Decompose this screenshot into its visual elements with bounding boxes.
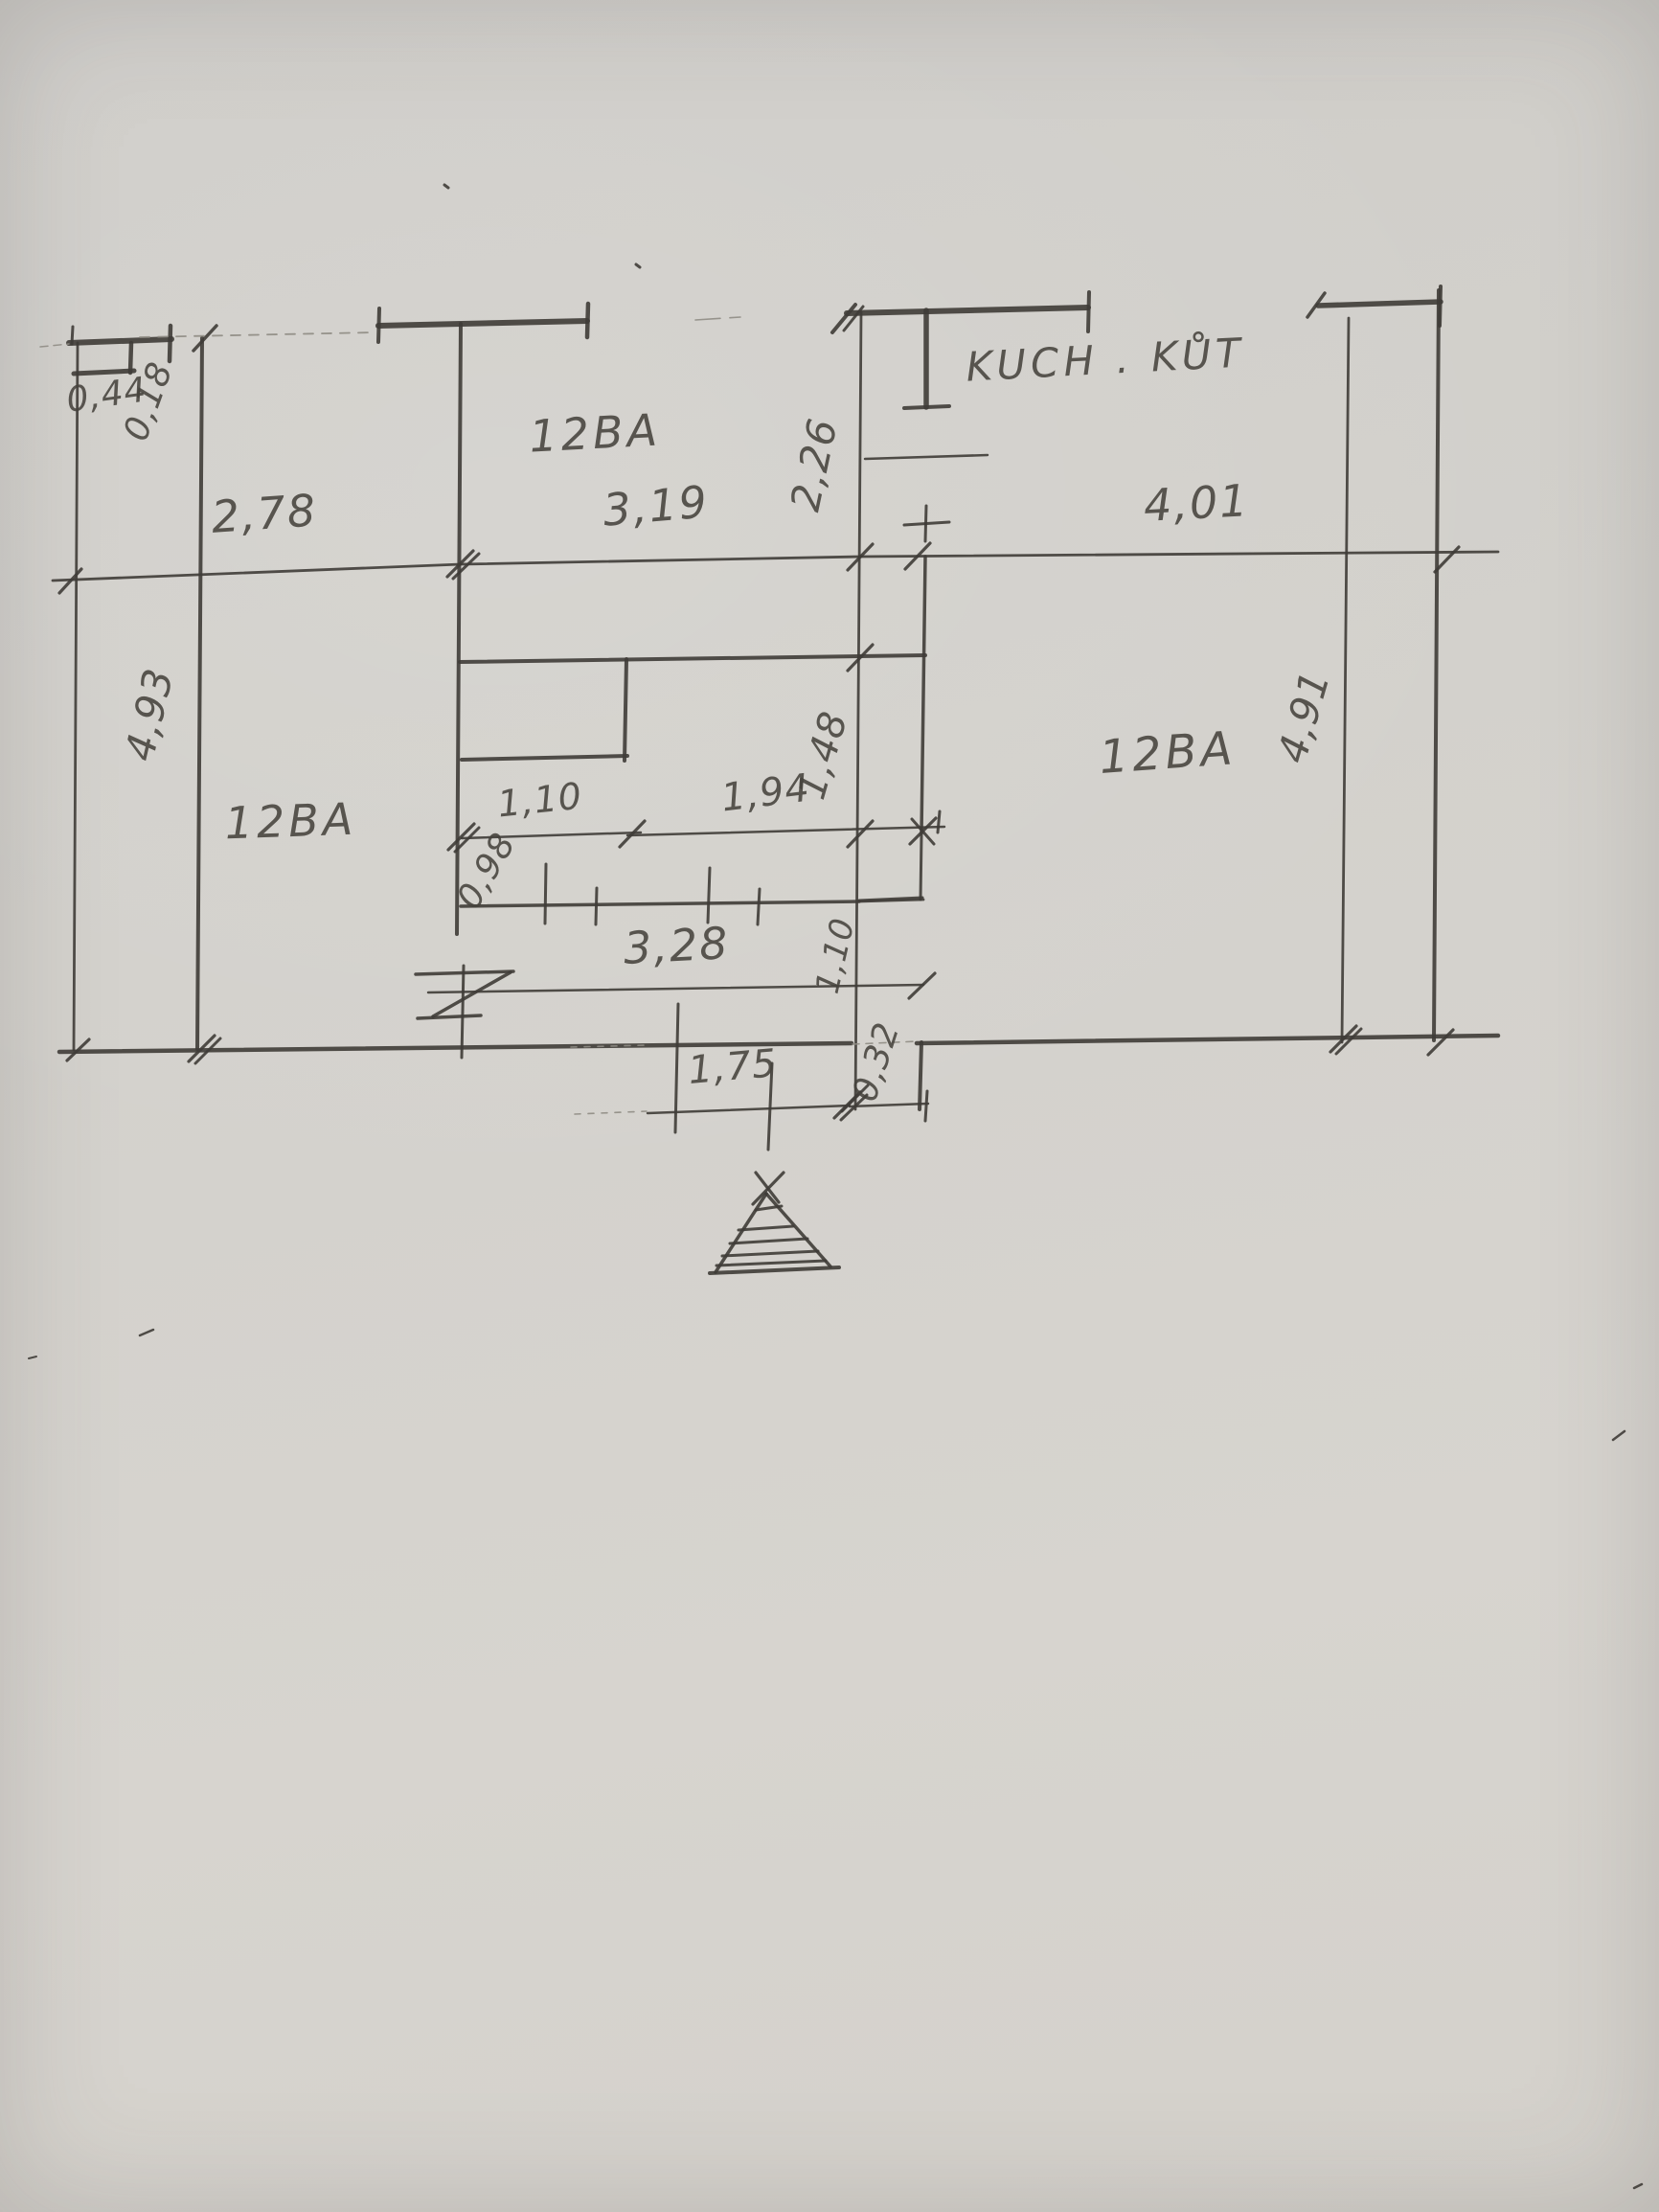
paper-speck-5 (1613, 1431, 1625, 1440)
entry-step-vertical (920, 1042, 921, 1109)
right-dim-line (1342, 318, 1349, 1042)
dim-1-10: 1,10 (495, 775, 584, 826)
door-bar-3 (708, 868, 710, 923)
break-mark-vertical (462, 966, 464, 1058)
kitchen-counter-line (865, 455, 988, 459)
dim-line-1-75 (648, 1106, 850, 1113)
floor-plan-svg: 0,440,182,7812BA3,192,26KUCH . KŮT4,014,… (0, 0, 1659, 2212)
triangle-hatch-4 (716, 1261, 826, 1266)
dim-span-2-78: 2,78 (210, 484, 319, 543)
paper-speck-2 (636, 264, 640, 267)
nook-box-top (69, 339, 171, 343)
door-bar-2 (596, 888, 597, 924)
bath-inner-vertical (625, 659, 626, 761)
shaft-right-side (920, 835, 921, 900)
right-wall-top-bar (1440, 286, 1441, 326)
photographed-paper-sheet: 0,440,182,7812BA3,192,26KUCH . KŮT4,014,… (0, 0, 1659, 2212)
dim-0-98: 0,98 (449, 827, 524, 916)
break-mark-bottom-bar (418, 1015, 481, 1018)
main-dim-line-a (53, 564, 461, 581)
dim-span-3-19: 3,19 (601, 475, 711, 536)
bottom-wall-right (917, 1036, 1498, 1043)
kitchen-plus-h (904, 522, 949, 525)
nook-end-bar (170, 326, 170, 361)
paper-speck-4 (29, 1357, 36, 1358)
room-label-right: 12BA (1098, 721, 1238, 785)
triangle-hatch-3 (722, 1251, 818, 1256)
top-wall-b-bar-right (1088, 292, 1089, 331)
main-dim-line-c (861, 552, 1498, 557)
top-wall-a (378, 321, 587, 326)
dim-kitchen-2-26: 2,26 (782, 414, 847, 515)
bath-bottom-wall-ext (859, 900, 923, 901)
bath-inner-horizontal (462, 756, 627, 760)
faint-top-gap-dash (695, 317, 740, 320)
left-dim-line (74, 343, 78, 1050)
dim-3-28: 3,28 (623, 917, 731, 974)
top-wall-b (847, 308, 1088, 313)
paper-speck-3 (140, 1330, 153, 1335)
kitchen-partition-tbar (904, 406, 949, 408)
room-label-left: 12BA (224, 793, 357, 850)
dim-1-75: 1,75 (687, 1041, 780, 1093)
left-wall (197, 338, 202, 1049)
dim-1-94-end-bar (938, 811, 940, 832)
dim-0-32-end-bar (925, 1091, 927, 1121)
dim-1-48: 1,48 (790, 706, 857, 804)
hall-wall-mid (921, 557, 925, 833)
paper-speck-1 (444, 185, 448, 188)
paper-speck-6 (1634, 2184, 1642, 2188)
dim-line-0-32 (850, 1104, 928, 1106)
nook-box-right (130, 343, 131, 373)
triangle-base (710, 1267, 839, 1273)
slash-194-898 (848, 821, 873, 847)
faint-top-left-link (140, 332, 375, 337)
triangle-right-side (766, 1194, 830, 1266)
faint-dim-175-left (575, 1111, 647, 1114)
bath-bottom-wall (461, 901, 859, 906)
right-wall (1434, 290, 1439, 1040)
dim-span-4-01: 4,01 (1143, 474, 1251, 532)
dim-line-1-94 (627, 827, 944, 835)
left-wall-top-slash (193, 326, 216, 351)
top-wall-a-bar-right (587, 304, 588, 337)
room-label-kitchen: KUCH . KŮT (965, 328, 1246, 390)
break-mark-diagonal (433, 972, 511, 1016)
kitchen-dim-vertical (855, 312, 861, 1109)
dim-height-4-93: 4,93 (116, 664, 183, 765)
main-dim-line-b (461, 557, 861, 564)
top-wall-c (1318, 302, 1441, 306)
top-wall-a-bar-left (378, 308, 379, 342)
dim-door-1-10: 1,10 (808, 914, 863, 997)
nook-box-left-tick (72, 327, 73, 344)
triangle-hatch-2 (730, 1239, 807, 1243)
triangle-left-side (716, 1194, 766, 1272)
slash-bottom-right-end (1428, 1030, 1453, 1055)
door-bar-4 (758, 889, 760, 924)
dim-line-3-28 (428, 985, 923, 992)
dim-height-4-91: 4,91 (1268, 665, 1339, 767)
faint-paper-edge-link (40, 344, 69, 347)
room-label-top: 12BA (528, 403, 662, 462)
door-bar-1 (545, 864, 546, 924)
